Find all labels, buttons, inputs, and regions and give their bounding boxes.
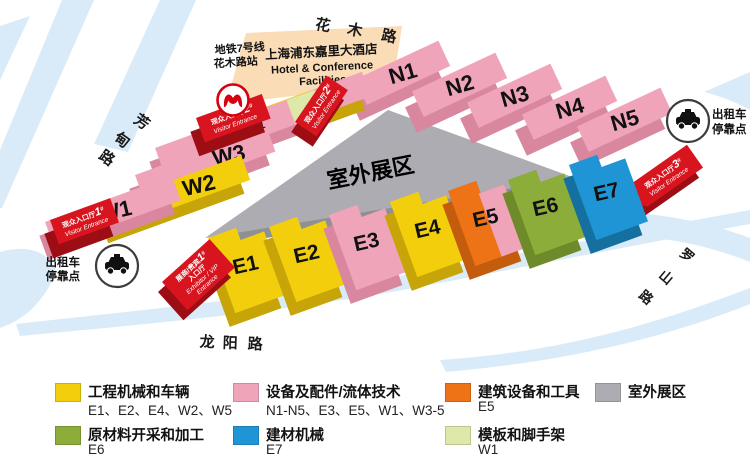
- road-bottom-char2: 阳: [222, 335, 238, 353]
- road-right-char2: 山: [656, 267, 676, 287]
- taxi-right-label2: 停靠点: [712, 122, 747, 136]
- legend-swatch-olive: [55, 426, 81, 445]
- legend-swatch-yellow: [55, 383, 81, 402]
- shanghai-metro-icon: [218, 85, 249, 116]
- legend-halls: E6: [88, 442, 105, 457]
- legend-halls: N1-N5、E3、E5、W1、W3-5: [266, 399, 445, 419]
- road-left-char3: 路: [96, 146, 119, 170]
- road-top-char1: 花: [314, 15, 332, 35]
- legend-title: 室外展区: [628, 381, 686, 402]
- road-right-char1: 罗: [677, 245, 697, 265]
- legend-title: 原材料开采和加工: [88, 424, 204, 445]
- taxi-left-label2: 停靠点: [46, 269, 81, 283]
- legend-swatch-gray: [595, 383, 621, 402]
- legend-swatch-orange: [445, 383, 471, 402]
- taxi-stand-right: 出租车 停靠点: [667, 100, 747, 142]
- background-shape: [0, 16, 30, 80]
- legend-swatch-lightgreen: [445, 426, 471, 445]
- legend-swatch-blue: [233, 426, 259, 445]
- venue-map: 上海浦东嘉里大酒店 Hotel & Conference Facilities …: [0, 0, 750, 375]
- taxi-left-label1: 出租车: [46, 255, 81, 269]
- expo-map-page: 上海浦东嘉里大酒店 Hotel & Conference Facilities …: [0, 0, 750, 468]
- road-bottom-char1: 龙: [198, 333, 215, 352]
- background-shape: [704, 72, 750, 110]
- legend-halls: E5: [478, 399, 495, 414]
- taxi-right-label1: 出租车: [712, 107, 747, 121]
- legend-halls: E1、E2、E4、W2、W5: [88, 399, 232, 419]
- road-bottom-char3: 路: [247, 335, 264, 354]
- taxi-icon: [667, 100, 709, 142]
- road-right-char3: 路: [636, 287, 657, 308]
- legend-swatch-pink: [233, 383, 259, 402]
- taxi-icon: [96, 245, 138, 287]
- background-shape: [440, 288, 750, 372]
- legend-halls: W1: [478, 442, 498, 457]
- legend: 工程机械和车辆 E1、E2、E4、W2、W5 设备及配件/流体技术 N1-N5、…: [0, 372, 750, 468]
- legend-halls: E7: [266, 442, 283, 457]
